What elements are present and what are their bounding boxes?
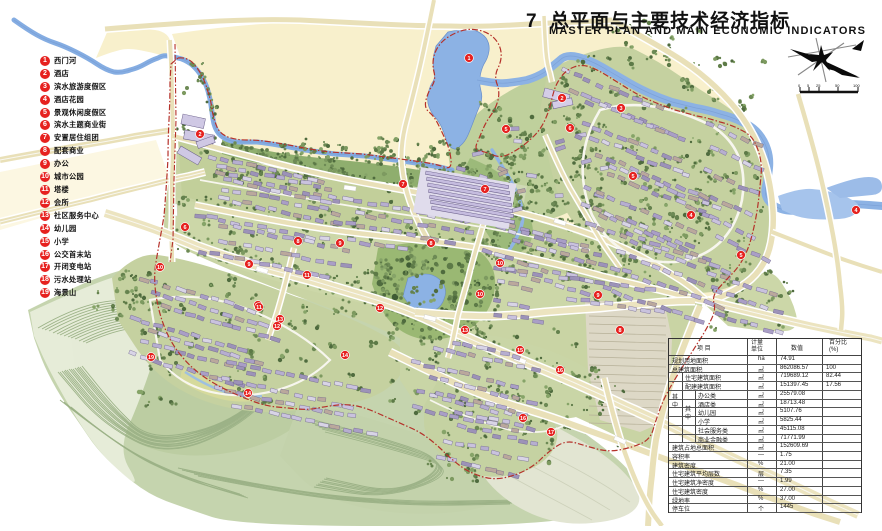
svg-text:10: 10 (477, 292, 483, 298)
svg-text:25: 25 (816, 84, 821, 88)
svg-text:14: 14 (342, 353, 349, 359)
svg-text:0: 0 (798, 84, 801, 88)
svg-text:8: 8 (618, 328, 621, 334)
svg-text:5: 5 (739, 253, 742, 259)
svg-text:1: 1 (467, 56, 470, 62)
svg-text:10: 10 (497, 261, 503, 267)
svg-text:6: 6 (183, 225, 186, 231)
svg-text:3: 3 (619, 106, 622, 112)
svg-text:7: 7 (401, 182, 404, 188)
svg-text:16: 16 (520, 416, 526, 422)
svg-text:14: 14 (245, 391, 252, 397)
svg-text:2: 2 (198, 132, 201, 138)
svg-text:16: 16 (557, 368, 563, 374)
svg-text:2: 2 (560, 96, 563, 102)
svg-text:8: 8 (429, 241, 432, 247)
svg-text:12: 12 (274, 324, 280, 330)
svg-text:100: 100 (853, 84, 860, 88)
svg-text:13: 13 (462, 328, 468, 334)
svg-text:8: 8 (296, 239, 299, 245)
svg-text:15: 15 (517, 348, 523, 354)
svg-text:11: 11 (304, 273, 310, 279)
svg-text:5: 5 (631, 174, 634, 180)
svg-text:9: 9 (596, 293, 599, 299)
svg-text:6: 6 (568, 126, 571, 132)
svg-text:17: 17 (548, 430, 554, 436)
svg-text:9: 9 (247, 262, 250, 268)
svg-text:50: 50 (835, 84, 840, 88)
svg-text:12: 12 (377, 306, 383, 312)
svg-text:5: 5 (807, 84, 810, 88)
svg-text:10: 10 (157, 265, 163, 271)
svg-text:5: 5 (504, 127, 507, 133)
svg-text:9: 9 (338, 241, 341, 247)
svg-text:11: 11 (256, 305, 262, 311)
svg-text:7: 7 (483, 187, 486, 193)
svg-text:19: 19 (148, 355, 154, 361)
